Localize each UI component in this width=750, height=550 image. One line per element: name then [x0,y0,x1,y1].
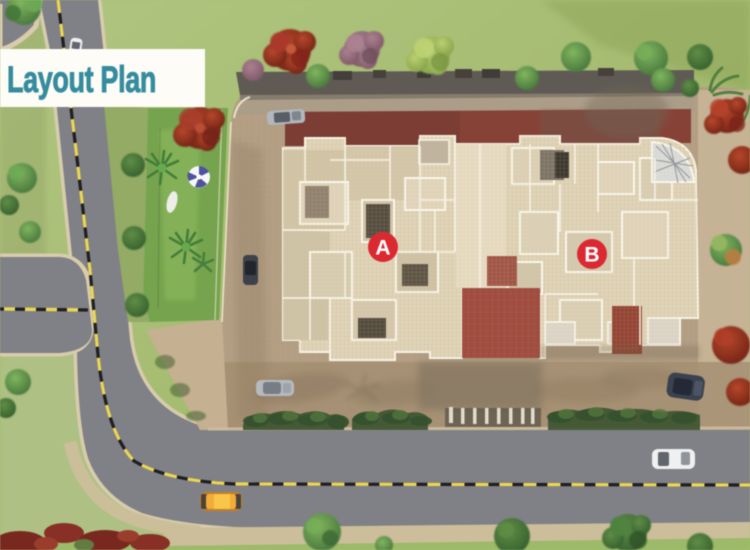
svg-text:Layout Plan: Layout Plan [7,59,156,100]
svg-text:B: B [584,244,599,267]
svg-text:A: A [375,237,390,260]
